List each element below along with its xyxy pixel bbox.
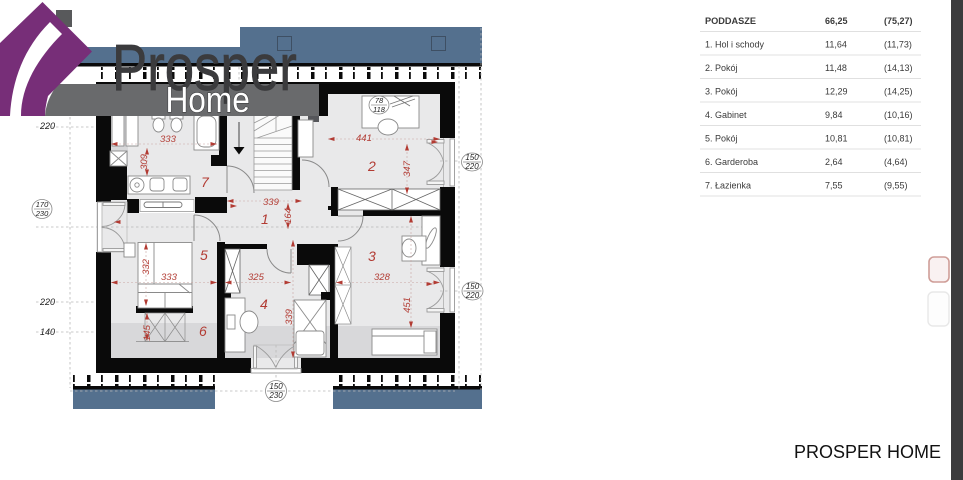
svg-text:4. Gabinet: 4. Gabinet <box>705 110 747 120</box>
svg-text:347: 347 <box>402 160 413 177</box>
svg-text:11,48: 11,48 <box>825 63 847 73</box>
svg-text:7. Łazienka: 7. Łazienka <box>705 181 751 191</box>
svg-text:(14,13): (14,13) <box>884 63 913 73</box>
svg-text:220: 220 <box>464 162 479 171</box>
svg-text:3. Pokój: 3. Pokój <box>705 87 738 97</box>
svg-text:170: 170 <box>36 200 49 209</box>
svg-text:140: 140 <box>40 327 55 337</box>
svg-text:2,64: 2,64 <box>825 157 843 167</box>
svg-text:339: 339 <box>284 308 295 325</box>
svg-text:7: 7 <box>201 174 210 190</box>
svg-text:(10,81): (10,81) <box>884 134 913 144</box>
svg-text:332: 332 <box>141 258 152 275</box>
svg-text:(75,27): (75,27) <box>884 16 913 26</box>
svg-text:(10,16): (10,16) <box>884 110 913 120</box>
svg-text:12,29: 12,29 <box>825 87 848 97</box>
svg-text:10,81: 10,81 <box>825 134 848 144</box>
svg-text:7,55: 7,55 <box>825 181 843 191</box>
svg-text:Home: Home <box>165 80 249 120</box>
svg-text:220: 220 <box>39 121 55 131</box>
svg-text:2: 2 <box>367 158 376 174</box>
svg-text:325: 325 <box>248 272 265 283</box>
svg-text:(4,64): (4,64) <box>884 157 908 167</box>
svg-text:(11,73): (11,73) <box>884 40 912 50</box>
svg-text:1. Hol i schody: 1. Hol i schody <box>705 40 765 50</box>
svg-text:118: 118 <box>373 105 386 114</box>
svg-text:164: 164 <box>283 208 294 224</box>
svg-text:339: 339 <box>263 197 280 208</box>
svg-text:11,64: 11,64 <box>825 40 847 50</box>
svg-text:333: 333 <box>160 134 177 145</box>
svg-text:451: 451 <box>402 297 413 313</box>
svg-text:3: 3 <box>368 248 376 264</box>
svg-text:5. Pokój: 5. Pokój <box>705 134 738 144</box>
svg-text:PROSPER HOME: PROSPER HOME <box>794 442 941 462</box>
svg-text:150: 150 <box>269 382 283 391</box>
svg-text:(9,55): (9,55) <box>884 181 908 191</box>
svg-text:PODDASZE: PODDASZE <box>705 16 756 26</box>
svg-text:(14,25): (14,25) <box>884 87 913 97</box>
svg-text:220: 220 <box>39 297 55 307</box>
svg-text:78: 78 <box>375 96 384 105</box>
svg-text:6. Garderoba: 6. Garderoba <box>705 157 758 167</box>
svg-text:441: 441 <box>356 133 372 144</box>
svg-text:230: 230 <box>35 209 49 218</box>
svg-text:150: 150 <box>465 153 479 162</box>
svg-text:6: 6 <box>199 323 207 339</box>
svg-text:220: 220 <box>465 291 480 300</box>
svg-text:328: 328 <box>374 272 391 283</box>
svg-text:333: 333 <box>161 272 178 283</box>
svg-text:150: 150 <box>466 282 480 291</box>
svg-text:230: 230 <box>268 391 283 400</box>
svg-text:5: 5 <box>200 247 208 263</box>
svg-text:9,84: 9,84 <box>825 110 843 120</box>
svg-text:4: 4 <box>260 296 268 312</box>
svg-text:1: 1 <box>261 211 269 227</box>
svg-text:2. Pokój: 2. Pokój <box>705 63 738 73</box>
svg-text:66,25: 66,25 <box>825 16 848 26</box>
svg-text:309: 309 <box>139 153 150 170</box>
